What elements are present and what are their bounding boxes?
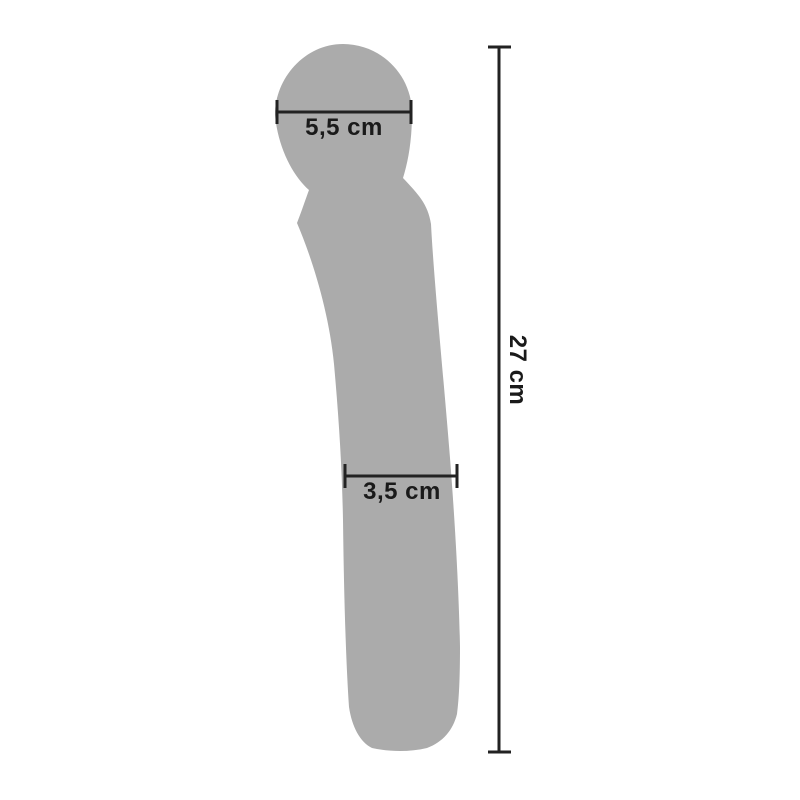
diagram-canvas — [0, 0, 800, 800]
total-length-label: 27 cm — [503, 335, 531, 406]
dimension-diagram: 5,5 cm 3,5 cm 27 cm — [0, 0, 800, 800]
head-width-label: 5,5 cm — [305, 114, 383, 142]
shaft-width-label: 3,5 cm — [363, 478, 441, 506]
